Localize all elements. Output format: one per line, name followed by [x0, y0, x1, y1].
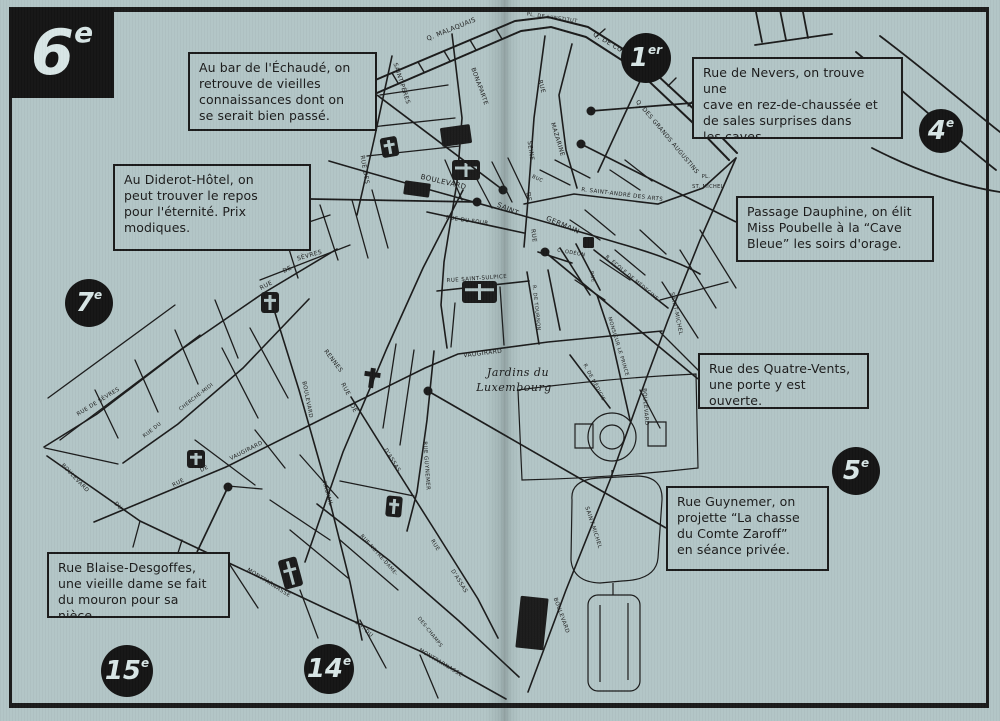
church-icon — [462, 281, 497, 303]
map-dot-quatre-vents — [541, 248, 550, 257]
map-dot-guynemer — [424, 387, 433, 396]
street-label: GERMAIN — [545, 215, 581, 236]
street-label: MONTPARNASSE — [417, 648, 463, 679]
badge-suffix: e — [74, 19, 93, 47]
arrondissement-badge-14: 14e — [304, 644, 354, 694]
street-label: DES-CHAMPS — [416, 616, 444, 649]
callout-diderot: Au Diderot-Hôtel, on peut trouver le rep… — [113, 164, 311, 251]
street-label: DE — [524, 192, 532, 202]
street-label: RUE GUYNEMER — [421, 441, 430, 490]
street-label: RUE — [259, 279, 274, 292]
badge-number: 7 — [76, 290, 94, 316]
street-label: Q. DES GRANDS AUGUSTINS — [634, 99, 700, 176]
street-label: D'ASSAS — [382, 448, 401, 474]
building-block — [583, 237, 594, 248]
garden-label-line2: Luxembourg — [475, 381, 552, 394]
leader-line-blaise-desgoffes — [197, 487, 228, 552]
badge-suffix: e — [141, 657, 149, 669]
callout-text: Au Diderot-Hôtel, on peut trouver le rep… — [124, 172, 300, 236]
map-dot-diderot — [473, 198, 482, 207]
callout-text: Passage Dauphine, on élit Miss Poubelle … — [747, 204, 923, 252]
arrondissement-badge-1: 1er — [621, 33, 671, 83]
map-dot-echaude — [499, 186, 508, 195]
street-label: RUE — [588, 271, 596, 283]
callout-dauphine: Passage Dauphine, on élit Miss Poubelle … — [736, 196, 934, 262]
badge-number: 4 — [928, 118, 946, 144]
church-icon-cross-h — [389, 504, 399, 505]
map-dot-dauphine — [577, 140, 586, 149]
building-block — [440, 124, 472, 147]
church-icon — [187, 450, 205, 468]
badge-number: 6 — [31, 22, 74, 84]
street-label: SAINT-MICHEL — [583, 506, 602, 550]
building-block-shape — [440, 124, 472, 147]
arrondissement-badge-7: 7e — [65, 279, 113, 327]
street-label: SEINE — [526, 141, 536, 161]
arrondissement-badge-4: 4e — [919, 109, 963, 153]
leader-line-dauphine — [581, 144, 736, 222]
church-icon — [379, 136, 399, 159]
callout-echaude: Au bar de l'Échaudé, on retrouve de viei… — [188, 52, 377, 131]
church-icon-cross-h — [384, 144, 395, 146]
arrondissement-badge-15: 15e — [101, 645, 153, 697]
badge-number: 1 — [630, 45, 648, 71]
arrondissement-badge-5: 5e — [832, 447, 880, 495]
leader-line-diderot — [311, 199, 477, 202]
badge-suffix: er — [648, 44, 662, 56]
street-label: DE — [282, 265, 293, 275]
cross-horizontal — [364, 371, 381, 378]
badge-number: 14 — [307, 656, 343, 682]
street-label: Q. MALAQUAIS — [425, 16, 477, 43]
badge-number: 5 — [843, 458, 861, 484]
building-block — [515, 596, 548, 651]
callout-text: Rue des Quatre-Vents, une porte y est ou… — [709, 361, 858, 409]
callout-blaise-desgoffes: Rue Blaise-Desgoffes, une vieille dame s… — [47, 552, 230, 618]
church-icon — [261, 292, 279, 313]
street-label: DE — [348, 403, 359, 414]
callout-text: Rue de Nevers, on trouve une cave en rez… — [703, 65, 892, 139]
building-block-shape — [403, 180, 431, 197]
street-label: BOULEVARD — [60, 463, 90, 494]
building-block — [403, 180, 431, 197]
street-label: D'ASSAS — [449, 569, 468, 595]
street-label: R. ÉCOLE DE MÉDECINE — [604, 253, 661, 303]
street-label: BOULEVARD — [641, 388, 650, 426]
street-label: RUE DU FOUR — [446, 215, 489, 227]
street-label: PL. — [702, 174, 711, 180]
building-block-shape — [515, 596, 548, 651]
street-label: VAUGIRARD — [463, 348, 503, 360]
street-label: BONAPARTE — [469, 67, 489, 106]
street-label: BUC — [531, 174, 544, 184]
garden-label-line1: Jardins du — [485, 366, 549, 379]
callout-text: Au bar de l'Échaudé, on retrouve de viei… — [199, 60, 366, 124]
street-label: SAINT — [496, 201, 521, 218]
church-icon-cross-v — [393, 499, 394, 514]
church-icon — [385, 495, 403, 517]
street-label: ST. MICHEL — [692, 184, 724, 190]
badge-suffix: e — [861, 457, 869, 469]
callout-text: Rue Guynemer, on projette “La chasse du … — [677, 494, 818, 558]
church-icon — [277, 556, 303, 590]
callout-quatre-vents: Rue des Quatre-Vents, une porte y est ou… — [698, 353, 869, 409]
badge-suffix: e — [343, 655, 351, 667]
badge-number: 15 — [105, 658, 141, 684]
badge-suffix: e — [94, 289, 102, 301]
street-label: RUE — [529, 229, 538, 243]
arrondissement-badge-6: 6e — [10, 8, 114, 98]
map-dot-nevers — [587, 107, 596, 116]
badge-suffix: e — [946, 117, 954, 129]
callout-nevers: Rue de Nevers, on trouve une cave en rez… — [692, 57, 903, 139]
cross-icon — [363, 367, 382, 389]
building-block-shape — [583, 237, 594, 248]
page: { "page": { "bg": "#b2c5c6", "ink": "#1b… — [0, 0, 1000, 721]
map-dot-blaise-desgoffes — [224, 483, 233, 492]
leader-line-guynemer — [428, 391, 666, 528]
street-label: PL. DE L'INSTITUT — [526, 11, 578, 24]
callout-guynemer: Rue Guynemer, on projette “La chasse du … — [666, 486, 829, 571]
street-label: RUE — [429, 539, 441, 553]
street-label: RENNES — [322, 348, 344, 374]
street-label: RUE NOTRE-DAME- — [359, 533, 399, 577]
street-label: C. ODÉON — [557, 246, 586, 259]
street-label: RUE — [339, 382, 352, 397]
callout-text: Rue Blaise-Desgoffes, une vieille dame s… — [58, 560, 219, 618]
